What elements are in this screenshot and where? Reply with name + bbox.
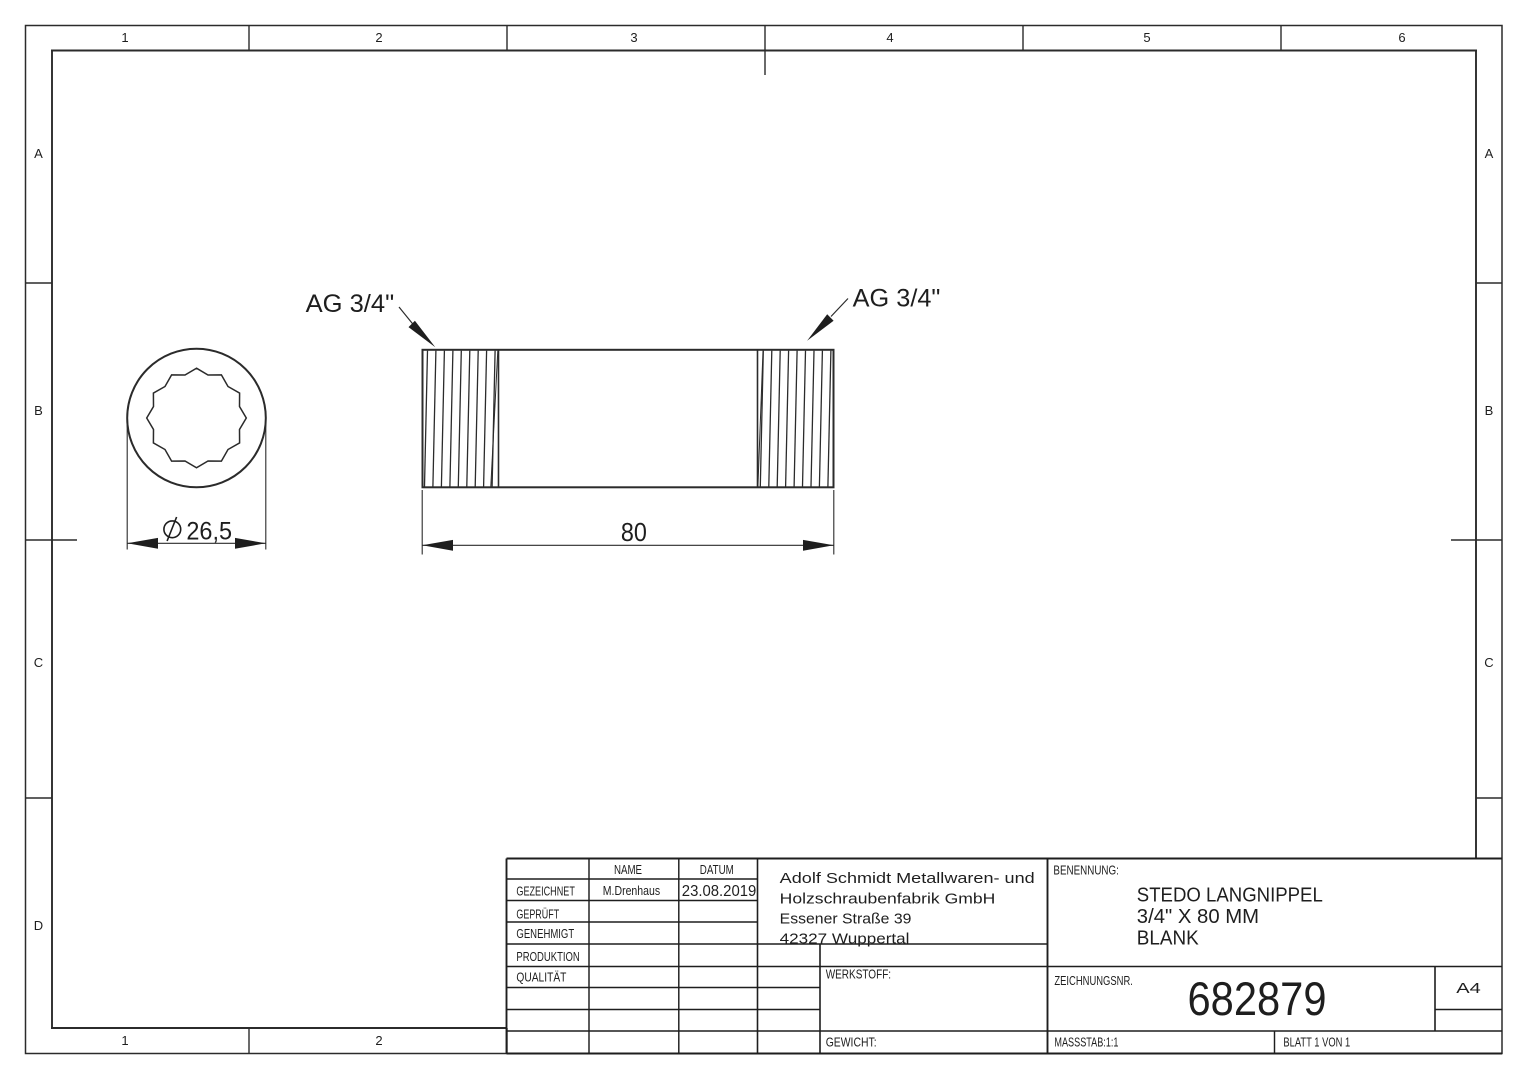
svg-text:AG 3/4": AG 3/4" bbox=[853, 285, 941, 313]
svg-text:GEWICHT:: GEWICHT: bbox=[826, 1034, 877, 1049]
svg-text:A4: A4 bbox=[1456, 980, 1481, 997]
svg-text:682879: 682879 bbox=[1188, 972, 1327, 1025]
svg-text:C: C bbox=[34, 655, 43, 670]
svg-text:26,5: 26,5 bbox=[186, 518, 232, 546]
svg-text:GENEHMIGT: GENEHMIGT bbox=[516, 927, 574, 941]
svg-text:A: A bbox=[34, 146, 43, 161]
svg-text:GEPRÜFT: GEPRÜFT bbox=[516, 908, 559, 922]
svg-text:3/4" X 80 MM: 3/4" X 80 MM bbox=[1137, 906, 1259, 928]
svg-text:WERKSTOFF:: WERKSTOFF: bbox=[826, 967, 891, 982]
svg-text:GEZEICHNET: GEZEICHNET bbox=[516, 885, 575, 899]
svg-text:B: B bbox=[1485, 403, 1494, 418]
svg-text:MASSSTAB:1:1: MASSSTAB:1:1 bbox=[1054, 1034, 1118, 1049]
svg-text:PRODUKTION: PRODUKTION bbox=[516, 950, 579, 964]
svg-text:D: D bbox=[34, 918, 43, 933]
svg-text:AG 3/4": AG 3/4" bbox=[306, 290, 395, 318]
svg-text:5: 5 bbox=[1143, 30, 1150, 45]
svg-text:ZEICHNUNGSNR.: ZEICHNUNGSNR. bbox=[1054, 973, 1133, 988]
svg-text:23.08.2019: 23.08.2019 bbox=[682, 883, 757, 900]
svg-text:DATUM: DATUM bbox=[700, 863, 734, 877]
svg-text:3: 3 bbox=[630, 30, 637, 45]
svg-text:STEDO LANGNIPPEL: STEDO LANGNIPPEL bbox=[1137, 885, 1323, 907]
svg-text:A: A bbox=[1485, 146, 1494, 161]
svg-text:1: 1 bbox=[121, 1033, 128, 1048]
svg-text:B: B bbox=[34, 403, 43, 418]
svg-text:QUALITÄT: QUALITÄT bbox=[516, 971, 566, 985]
svg-text:2: 2 bbox=[375, 1033, 382, 1048]
svg-text:C: C bbox=[1484, 655, 1493, 670]
svg-text:4: 4 bbox=[886, 30, 893, 45]
svg-text:42327 Wuppertal: 42327 Wuppertal bbox=[780, 930, 910, 947]
svg-text:2: 2 bbox=[375, 30, 382, 45]
svg-text:1: 1 bbox=[121, 30, 128, 45]
svg-text:NAME: NAME bbox=[614, 863, 642, 877]
svg-text:6: 6 bbox=[1398, 30, 1405, 45]
svg-text:BENENNUNG:: BENENNUNG: bbox=[1053, 863, 1119, 878]
svg-text:Essener Straße 39: Essener Straße 39 bbox=[780, 910, 912, 927]
svg-text:80: 80 bbox=[621, 519, 647, 547]
svg-text:BLATT 1 VON 1: BLATT 1 VON 1 bbox=[1283, 1034, 1350, 1049]
svg-text:Adolf Schmidt Metallwaren- und: Adolf Schmidt Metallwaren- und bbox=[780, 870, 1035, 887]
svg-text:M.Drenhaus: M.Drenhaus bbox=[603, 884, 660, 898]
svg-text:BLANK: BLANK bbox=[1137, 927, 1200, 949]
svg-text:Holzschraubenfabrik GmbH: Holzschraubenfabrik GmbH bbox=[780, 890, 996, 907]
